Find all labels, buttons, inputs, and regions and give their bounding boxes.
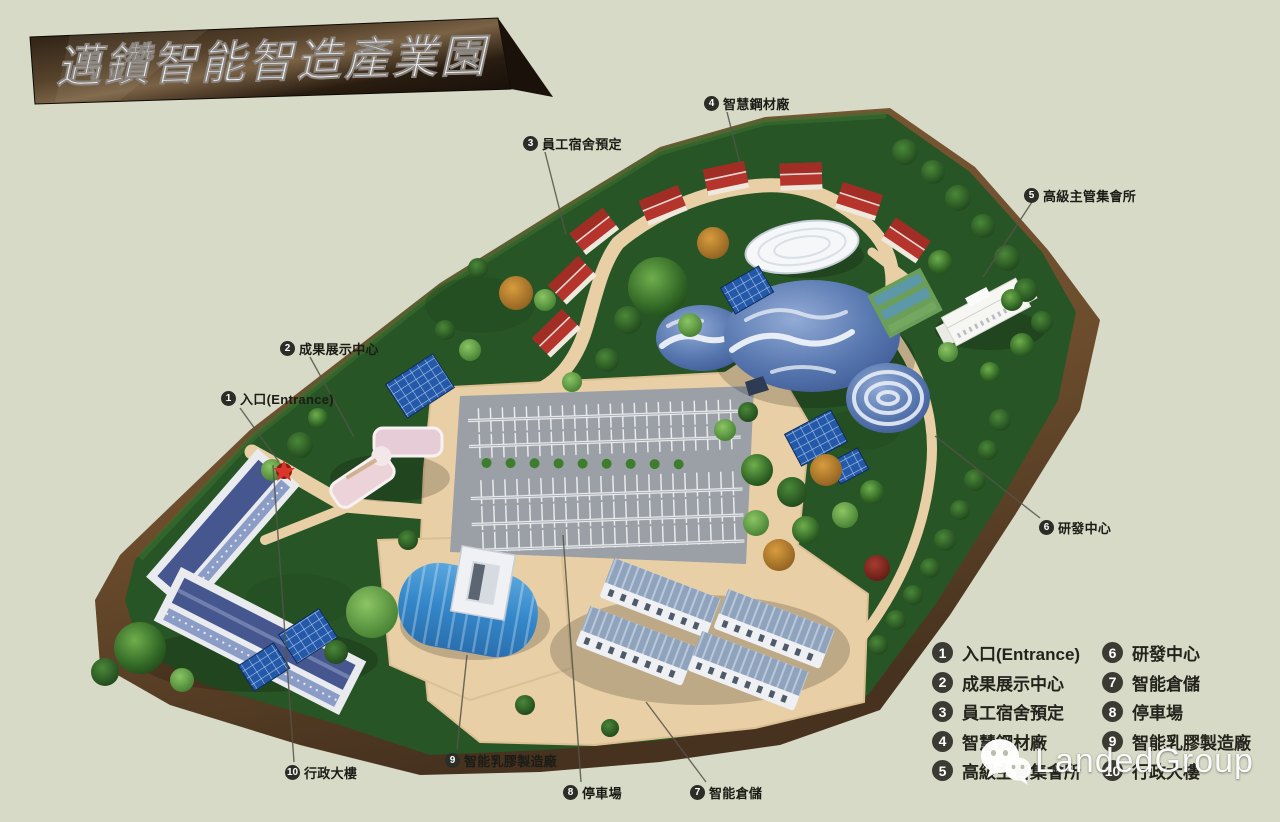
- callout-parking-lot: 8 停車場: [563, 783, 622, 802]
- legend-item-exhibition-center: 2 成果展示中心: [932, 668, 1081, 698]
- callout-steel-plant: 4 智慧鋼材廠: [704, 94, 790, 113]
- callout-label: 成果展示中心: [299, 339, 379, 358]
- legend-label: 研發中心: [1132, 640, 1200, 665]
- callout-executive-clubhouse: 5 高級主管集會所: [1024, 186, 1136, 205]
- legend-item-rnd-center: 6 研發中心: [1102, 638, 1251, 668]
- callout-staff-dormitory: 3 員工宿舍預定: [523, 134, 622, 153]
- legend-label: 智能倉儲: [1132, 670, 1200, 695]
- callout-entrance: 1 入口(Entrance): [221, 389, 334, 408]
- callout-number-badge: 10: [285, 765, 300, 780]
- callout-number-badge: 2: [280, 341, 295, 356]
- watermark-text: LandedGroup: [1035, 742, 1254, 781]
- legend-number-badge: 8: [1102, 701, 1123, 722]
- legend-label: 停車場: [1132, 699, 1183, 724]
- callout-label: 智慧鋼材廠: [723, 94, 790, 113]
- callout-label: 研發中心: [1058, 518, 1111, 537]
- legend-item-parking-lot: 8 停車場: [1102, 697, 1251, 727]
- site-plan-poster: 邁鑽智能智造產業園 1 入口(Entrance) 2 成果展示中心 3 員工宿舍…: [0, 0, 1280, 822]
- legend-number-badge: 7: [1102, 672, 1123, 693]
- callout-number-badge: 8: [563, 785, 578, 800]
- callout-label: 行政大樓: [304, 763, 357, 782]
- factory-entrance-block: [451, 546, 516, 620]
- callout-number-badge: 6: [1039, 520, 1054, 535]
- callout-exhibition-center: 2 成果展示中心: [280, 339, 379, 358]
- callout-label: 高級主管集會所: [1043, 186, 1136, 205]
- watermark: LandedGroup: [980, 736, 1254, 786]
- legend-number-badge: 2: [932, 672, 953, 693]
- callout-number-badge: 7: [690, 785, 705, 800]
- legend-number-badge: 6: [1102, 642, 1123, 663]
- callout-label: 智能倉儲: [709, 783, 762, 802]
- legend-item-entrance: 1 入口(Entrance): [932, 638, 1081, 668]
- callout-number-badge: 4: [704, 96, 719, 111]
- callout-label: 入口(Entrance): [240, 389, 334, 408]
- title-banner: 邁鑽智能智造產業園: [30, 18, 553, 104]
- legend-item-smart-warehouse: 7 智能倉儲: [1102, 668, 1251, 698]
- callout-label: 智能乳膠製造廠: [464, 751, 557, 770]
- callout-rnd-center: 6 研發中心: [1039, 518, 1111, 537]
- parking-lot: [450, 386, 754, 564]
- callout-number-badge: 5: [1024, 188, 1039, 203]
- legend-label: 員工宿舍預定: [962, 699, 1064, 724]
- callout-label: 停車場: [582, 783, 622, 802]
- legend-number-badge: 5: [932, 760, 953, 781]
- legend-number-badge: 4: [932, 731, 953, 752]
- callout-admin-building: 10 行政大樓: [285, 763, 357, 782]
- callout-latex-factory: 9 智能乳膠製造廠: [445, 751, 557, 770]
- legend-number-badge: 1: [932, 642, 953, 663]
- legend-label: 入口(Entrance): [962, 640, 1080, 665]
- legend-label: 成果展示中心: [962, 670, 1064, 695]
- callout-label: 員工宿舍預定: [542, 134, 622, 153]
- rnd-dome-south: [846, 363, 930, 433]
- callout-number-badge: 3: [523, 136, 538, 151]
- callout-smart-warehouse: 7 智能倉儲: [690, 783, 762, 802]
- legend-item-staff-dormitory: 3 員工宿舍預定: [932, 697, 1081, 727]
- legend-number-badge: 3: [932, 701, 953, 722]
- callout-number-badge: 9: [445, 753, 460, 768]
- industrial-park-map: 邁鑽智能智造產業園: [0, 0, 1280, 822]
- callout-number-badge: 1: [221, 391, 236, 406]
- wechat-bubbles-icon: [980, 736, 1032, 786]
